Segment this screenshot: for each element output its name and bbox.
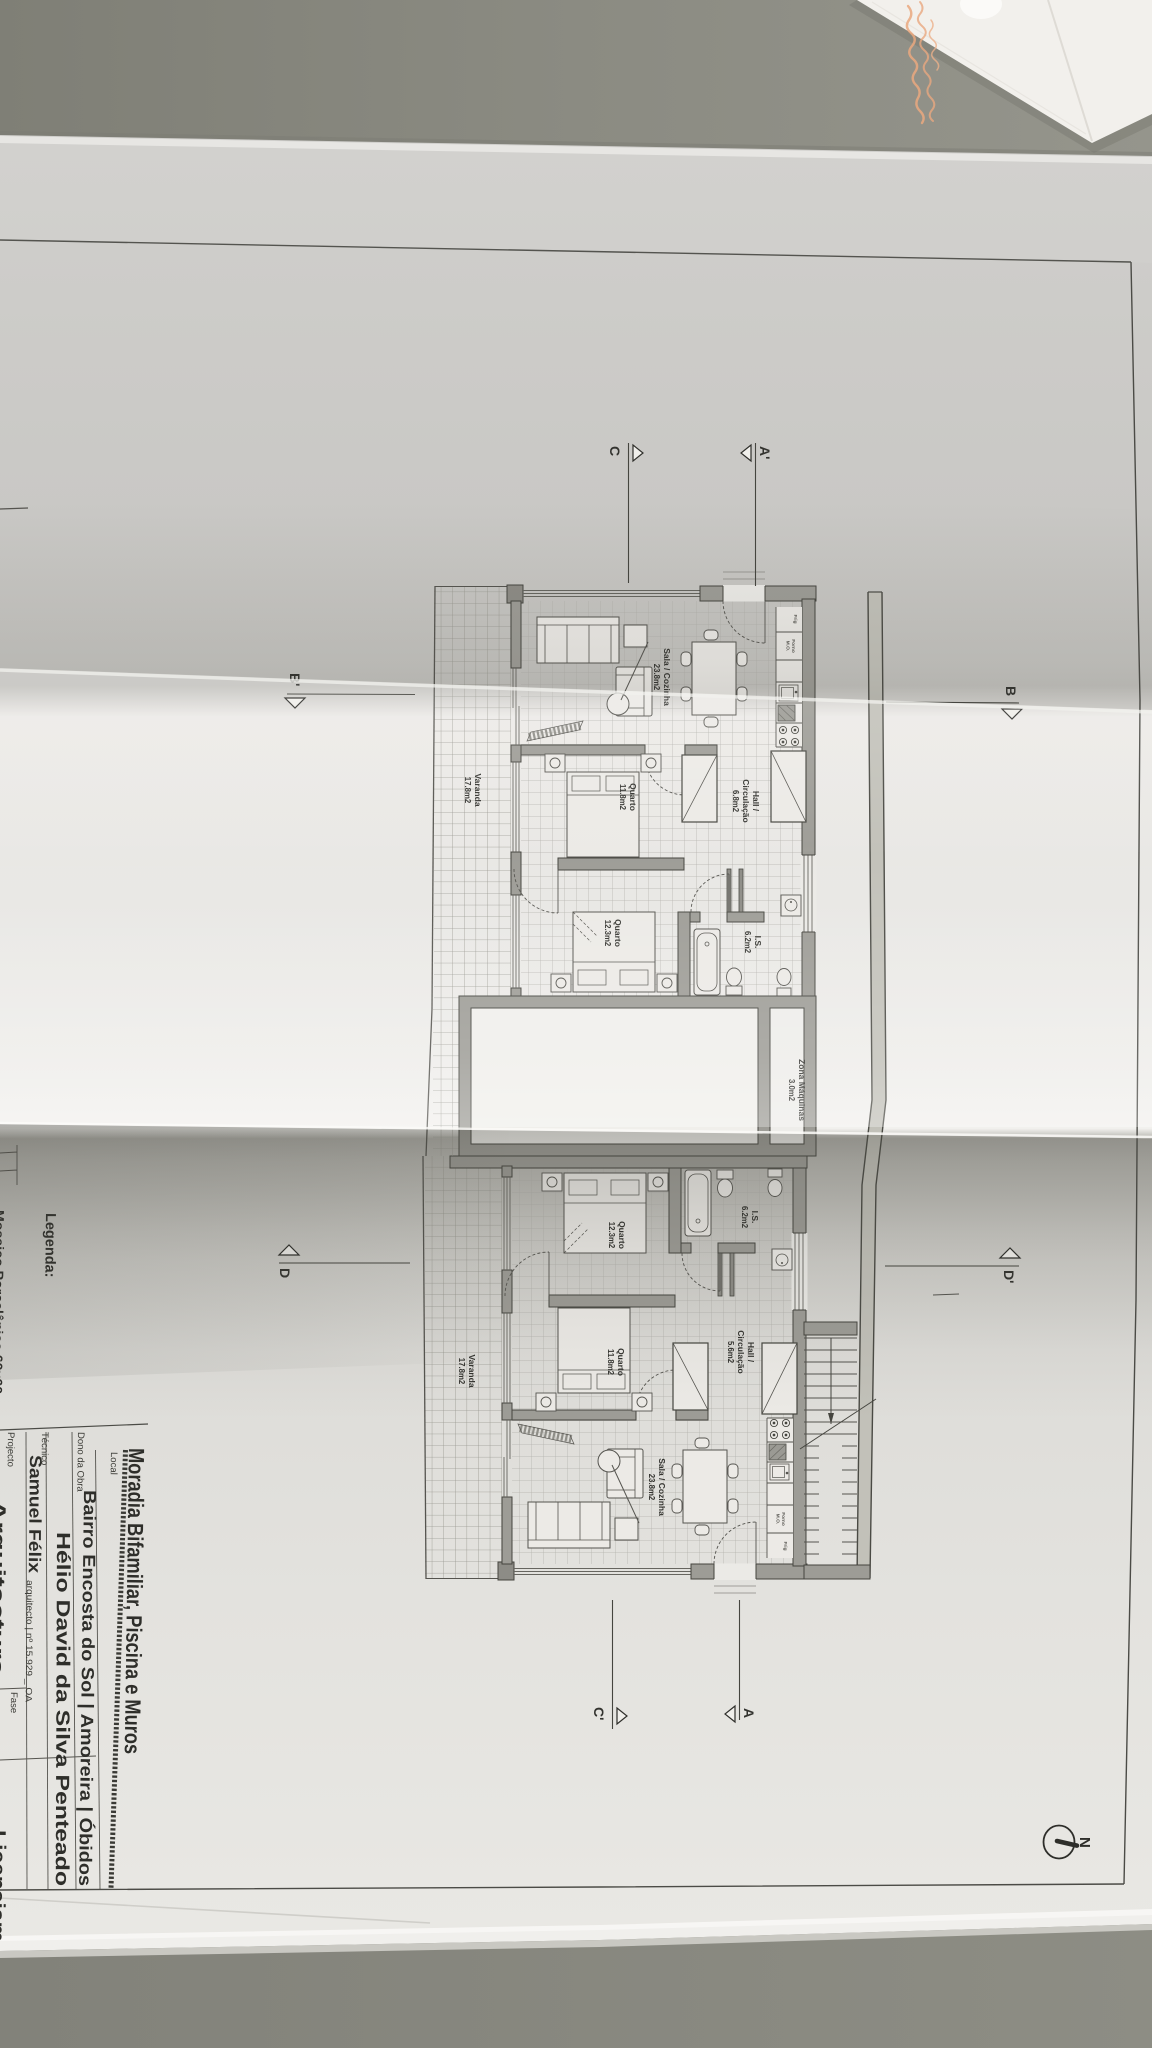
svg-text:Moradia Bifamiliar, Piscina e: Moradia Bifamiliar, Piscina e Muros [120,1448,149,1754]
svg-text:FornoM.O.: FornoM.O. [775,1512,787,1526]
svg-text:C: C [607,446,623,456]
svg-text:Hélio David da Silva Penteado: Hélio David da Silva Penteado [51,1532,73,1886]
svg-text:N: N [1076,1837,1093,1848]
svg-text:Frig: Frig [782,1541,788,1550]
svg-text:C': C' [591,1707,607,1720]
svg-text:Samuel Félix: Samuel Félix [25,1455,45,1574]
svg-text:Arquitectura: Arquitectura [0,1500,9,1677]
svg-text:arquitecto | nº 15.929 _ OA: arquitecto | nº 15.929 _ OA [24,1580,35,1702]
svg-text:Fase: Fase [8,1692,19,1713]
svg-text:Local: Local [108,1452,119,1475]
svg-text:A: A [741,1708,757,1718]
svg-text:Dono da Obra: Dono da Obra [74,1432,86,1493]
svg-text:A': A' [757,446,773,459]
svg-text:Projecto: Projecto [5,1432,16,1467]
